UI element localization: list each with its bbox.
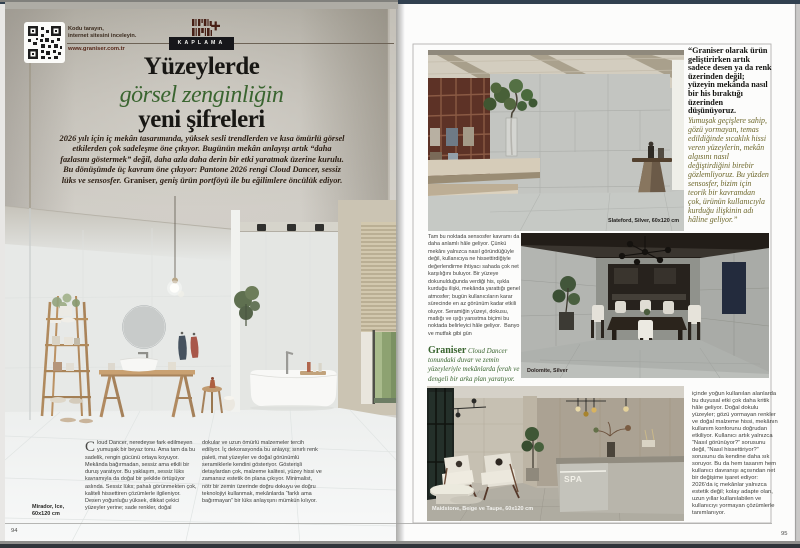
svg-text:SPA: SPA (564, 474, 582, 484)
